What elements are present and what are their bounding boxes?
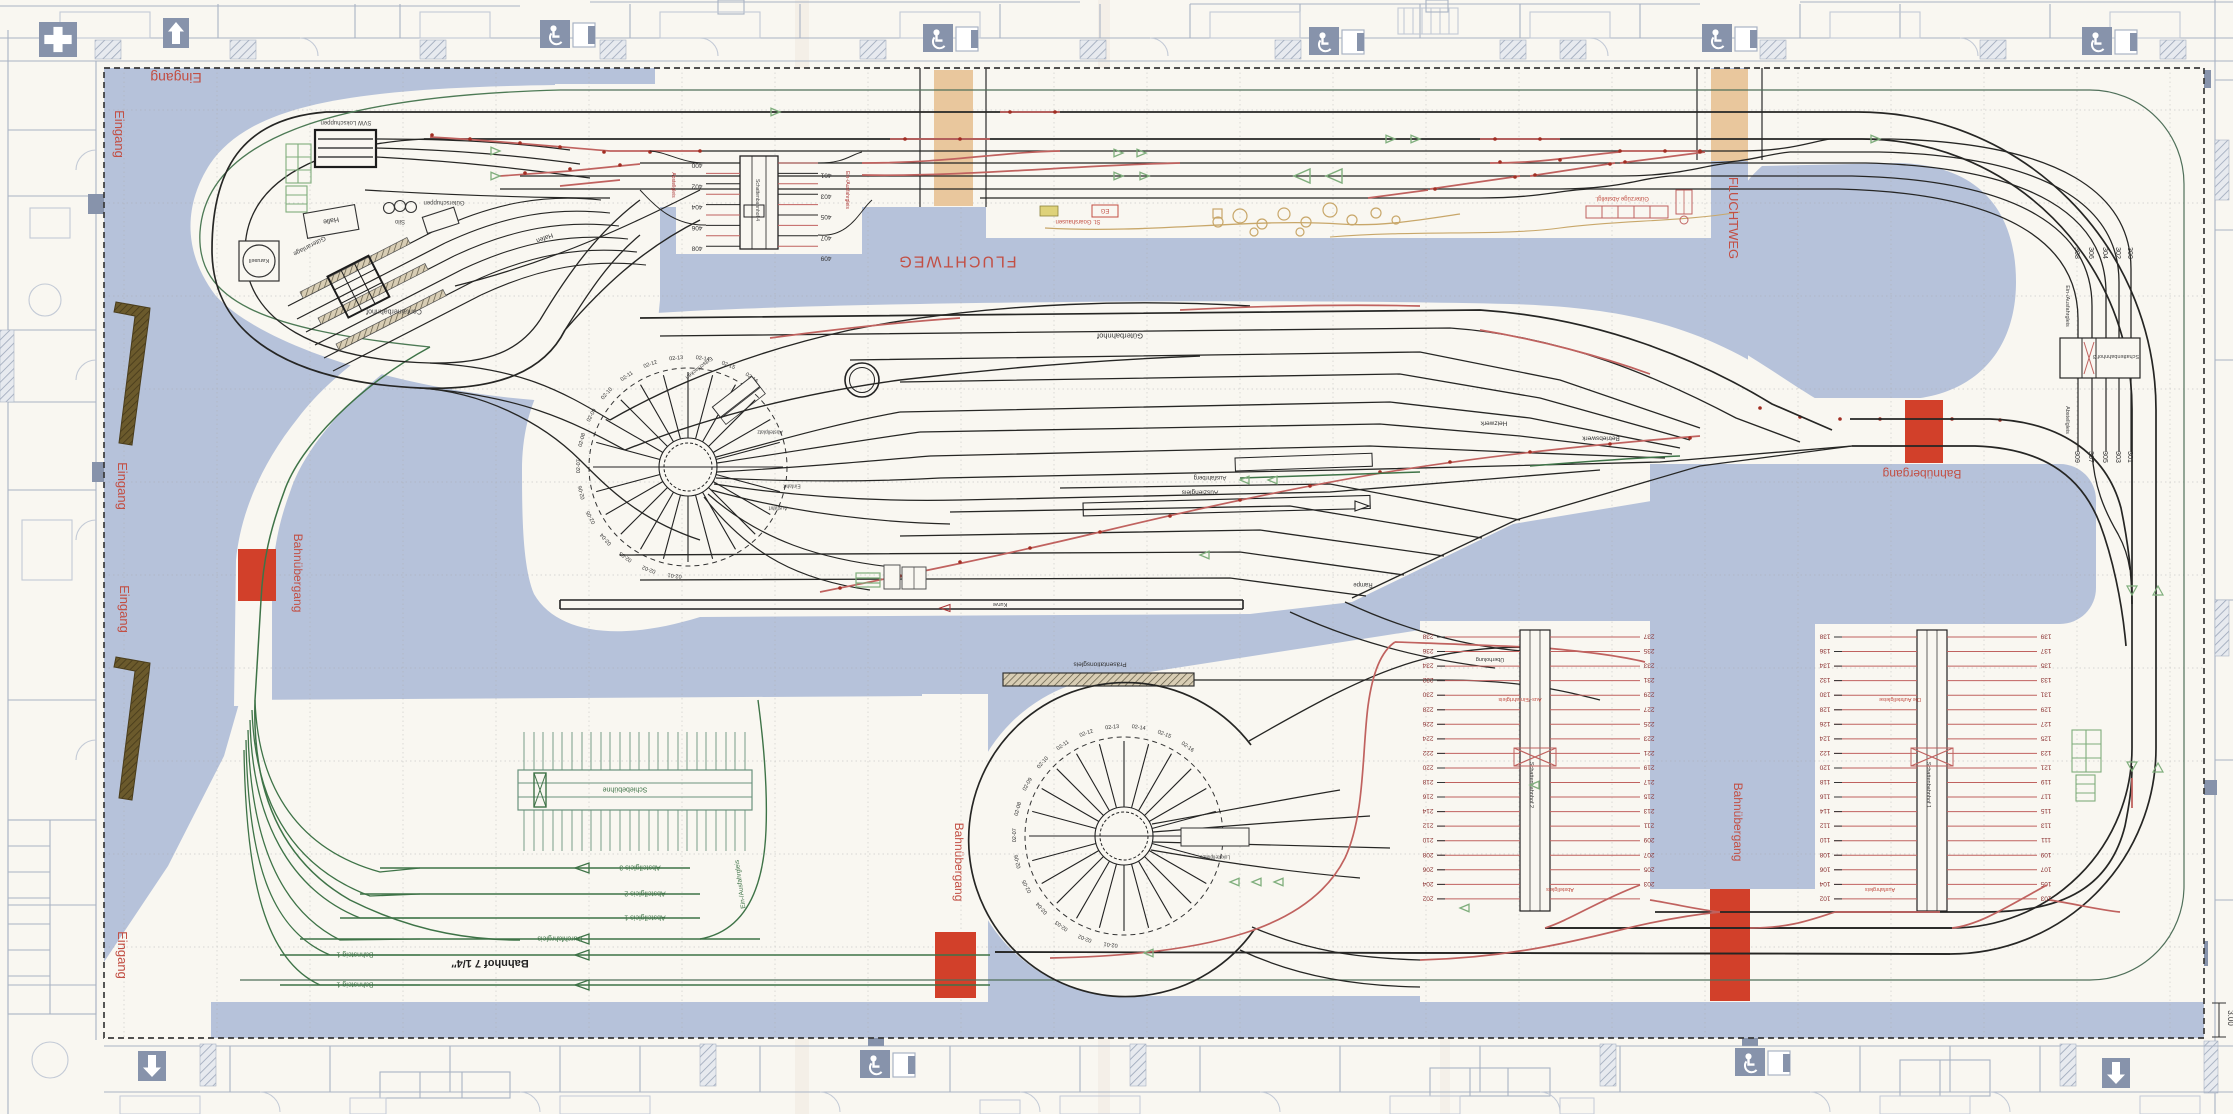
svg-text:222: 222 bbox=[1422, 749, 1433, 756]
svg-text:129: 129 bbox=[2040, 705, 2051, 712]
svg-text:Eingang: Eingang bbox=[115, 462, 130, 510]
svg-text:217: 217 bbox=[1643, 778, 1654, 785]
svg-text:125: 125 bbox=[2040, 734, 2051, 741]
svg-text:Containerbahnhof: Containerbahnhof bbox=[366, 308, 422, 315]
svg-text:Abstellgleis 3: Abstellgleis 3 bbox=[619, 864, 660, 871]
svg-text:Abstellgleis 1: Abstellgleis 1 bbox=[624, 914, 665, 921]
svg-text:FLUCHTWEG: FLUCHTWEG bbox=[1726, 177, 1741, 259]
svg-text:218: 218 bbox=[1422, 778, 1433, 785]
svg-text:124: 124 bbox=[1819, 734, 1830, 741]
svg-text:209: 209 bbox=[1643, 836, 1654, 843]
svg-text:402: 402 bbox=[691, 182, 702, 189]
svg-text:214: 214 bbox=[1422, 807, 1433, 814]
svg-text:204: 204 bbox=[1422, 880, 1433, 887]
svg-text:106: 106 bbox=[1819, 865, 1830, 872]
svg-text:104: 104 bbox=[1819, 880, 1830, 887]
svg-text:117: 117 bbox=[2040, 793, 2051, 800]
svg-text:Heizwerk: Heizwerk bbox=[1480, 420, 1507, 427]
svg-text:108: 108 bbox=[1819, 851, 1830, 858]
svg-text:136: 136 bbox=[1819, 647, 1830, 654]
svg-text:Bahnübergang: Bahnübergang bbox=[1731, 783, 1745, 862]
svg-text:Durchfahrgleis: Durchfahrgleis bbox=[537, 935, 583, 942]
svg-text:122: 122 bbox=[1819, 749, 1830, 756]
svg-text:126: 126 bbox=[1819, 720, 1830, 727]
svg-text:308: 308 bbox=[2073, 247, 2080, 259]
svg-text:401: 401 bbox=[820, 172, 831, 179]
svg-text:102: 102 bbox=[1819, 894, 1830, 901]
svg-text:115: 115 bbox=[2040, 807, 2051, 814]
svg-text:114: 114 bbox=[1819, 807, 1830, 814]
svg-text:305: 305 bbox=[2101, 451, 2108, 463]
svg-text:Güterbahnhof: Güterbahnhof bbox=[1096, 331, 1143, 340]
svg-text:127: 127 bbox=[2040, 720, 2051, 727]
svg-text:Rampe: Rampe bbox=[1353, 581, 1373, 587]
svg-text:107: 107 bbox=[2040, 865, 2051, 872]
svg-text:409: 409 bbox=[820, 255, 831, 262]
svg-text:118: 118 bbox=[1819, 778, 1830, 785]
svg-text:237: 237 bbox=[1643, 633, 1654, 640]
svg-text:227: 227 bbox=[1643, 705, 1654, 712]
svg-text:Karusell: Karusell bbox=[249, 257, 269, 263]
svg-text:211: 211 bbox=[1643, 822, 1654, 829]
svg-text:133: 133 bbox=[2040, 676, 2051, 683]
svg-text:FLUCHTWEG: FLUCHTWEG bbox=[897, 252, 1016, 269]
svg-text:Güterschuppen: Güterschuppen bbox=[423, 199, 464, 205]
svg-text:Eingang: Eingang bbox=[150, 70, 201, 86]
svg-text:238: 238 bbox=[1422, 633, 1433, 640]
svg-text:121: 121 bbox=[2040, 763, 2051, 770]
svg-text:111: 111 bbox=[2041, 836, 2051, 843]
svg-text:Bahnübergang: Bahnübergang bbox=[952, 823, 966, 902]
svg-text:304: 304 bbox=[2101, 247, 2108, 259]
svg-text:Ausfahrt: Ausfahrt bbox=[768, 504, 787, 510]
svg-text:St. Goarshausen: St. Goarshausen bbox=[1055, 218, 1100, 224]
svg-text:408: 408 bbox=[691, 245, 702, 252]
svg-text:210: 210 bbox=[1422, 836, 1433, 843]
svg-text:Schiebebühne: Schiebebühne bbox=[603, 786, 648, 793]
svg-text:Güterzüge Abstellgl.: Güterzüge Abstellgl. bbox=[1595, 195, 1649, 201]
svg-text:212: 212 bbox=[1422, 822, 1433, 829]
svg-text:Ein-/Ausfahrgleis: Ein-/Ausfahrgleis bbox=[2064, 285, 2070, 327]
svg-text:Überholung: Überholung bbox=[1476, 656, 1504, 663]
svg-text:215: 215 bbox=[1643, 793, 1654, 800]
svg-text:Bahnsteig 1: Bahnsteig 1 bbox=[336, 951, 373, 958]
svg-text:Aus-/Einfahrtgleis: Aus-/Einfahrtgleis bbox=[1498, 696, 1541, 702]
svg-text:403: 403 bbox=[820, 192, 831, 199]
svg-text:233: 233 bbox=[1643, 662, 1654, 669]
svg-text:123: 123 bbox=[2040, 749, 2051, 756]
svg-text:Einfahrt: Einfahrt bbox=[783, 482, 801, 488]
svg-text:110: 110 bbox=[1819, 836, 1830, 843]
svg-text:229: 229 bbox=[1643, 691, 1654, 698]
svg-text:EG: EG bbox=[1100, 207, 1109, 213]
svg-text:205: 205 bbox=[1643, 865, 1654, 872]
svg-text:130: 130 bbox=[1819, 691, 1830, 698]
svg-text:112: 112 bbox=[1819, 822, 1830, 829]
svg-text:134: 134 bbox=[1819, 662, 1830, 669]
svg-text:Ausziehgleis: Ausziehgleis bbox=[1181, 489, 1218, 496]
svg-text:Betriebswerk: Betriebswerk bbox=[1581, 435, 1619, 442]
svg-text:128: 128 bbox=[1819, 705, 1830, 712]
svg-text:Eingang: Eingang bbox=[112, 110, 127, 158]
svg-text:231: 231 bbox=[1643, 676, 1654, 683]
svg-text:Eingang: Eingang bbox=[117, 585, 132, 633]
svg-text:Ausfahrberg: Ausfahrberg bbox=[1194, 474, 1227, 480]
svg-text:232: 232 bbox=[1422, 676, 1433, 683]
svg-text:103: 103 bbox=[2040, 894, 2051, 901]
svg-text:Ein-/Ausfahrgleis: Ein-/Ausfahrgleis bbox=[844, 171, 850, 209]
svg-text:Abstellgleis: Abstellgleis bbox=[2064, 406, 2070, 434]
svg-text:220: 220 bbox=[1422, 763, 1433, 770]
svg-text:228: 228 bbox=[1422, 705, 1433, 712]
svg-text:216: 216 bbox=[1422, 793, 1433, 800]
svg-text:Präsentationsgleis: Präsentationsgleis bbox=[1073, 661, 1127, 668]
svg-text:Bahnhof 7 1/4″: Bahnhof 7 1/4″ bbox=[451, 957, 529, 969]
svg-text:Bahnübergang: Bahnübergang bbox=[291, 534, 305, 613]
svg-text:226: 226 bbox=[1422, 720, 1433, 727]
svg-text:02-07: 02-07 bbox=[1012, 828, 1018, 842]
svg-text:Abstellgleis 2: Abstellgleis 2 bbox=[624, 890, 665, 897]
svg-text:306: 306 bbox=[2087, 247, 2094, 259]
svg-text:Eingang: Eingang bbox=[115, 931, 130, 979]
svg-text:Abstellgleis: Abstellgleis bbox=[670, 172, 676, 198]
svg-text:301: 301 bbox=[2126, 451, 2133, 463]
svg-text:208: 208 bbox=[1422, 851, 1433, 858]
svg-text:236: 236 bbox=[1422, 647, 1433, 654]
svg-text:Silo: Silo bbox=[394, 218, 405, 224]
svg-text:119: 119 bbox=[2040, 778, 2051, 785]
svg-text:213: 213 bbox=[1643, 807, 1654, 814]
svg-text:404: 404 bbox=[691, 203, 702, 210]
svg-text:230: 230 bbox=[1422, 691, 1433, 698]
svg-text:109: 109 bbox=[2040, 851, 2051, 858]
svg-text:302: 302 bbox=[2114, 247, 2121, 259]
svg-text:Ausfahrgleis: Ausfahrgleis bbox=[1865, 886, 1896, 892]
svg-text:3.00: 3.00 bbox=[2226, 1010, 2233, 1026]
svg-text:207: 207 bbox=[1643, 851, 1654, 858]
svg-text:221: 221 bbox=[1643, 749, 1654, 756]
svg-text:206: 206 bbox=[1422, 865, 1433, 872]
svg-text:225: 225 bbox=[1643, 720, 1654, 727]
svg-text:Lokstellplätze: Lokstellplätze bbox=[1200, 853, 1231, 859]
svg-text:Schattenbahnhof 3: Schattenbahnhof 3 bbox=[2093, 353, 2139, 359]
svg-text:234: 234 bbox=[1422, 662, 1433, 669]
svg-text:235: 235 bbox=[1643, 647, 1654, 654]
svg-text:120: 120 bbox=[1819, 763, 1830, 770]
svg-text:Kurve: Kurve bbox=[993, 601, 1007, 607]
svg-text:202: 202 bbox=[1422, 894, 1433, 901]
svg-text:132: 132 bbox=[1819, 676, 1830, 683]
svg-text:Abstellplatz: Abstellplatz bbox=[757, 428, 783, 434]
svg-text:Bahnübergang: Bahnübergang bbox=[1883, 467, 1962, 481]
svg-text:300: 300 bbox=[2126, 247, 2133, 259]
svg-text:Die Aufstellgleise: Die Aufstellgleise bbox=[1879, 696, 1921, 702]
svg-text:Schattenbahnhof 4: Schattenbahnhof 4 bbox=[754, 179, 760, 221]
svg-text:131: 131 bbox=[2040, 691, 2051, 698]
svg-text:116: 116 bbox=[1819, 793, 1830, 800]
svg-text:Schattenbahnhof 1: Schattenbahnhof 1 bbox=[1925, 762, 1931, 808]
svg-text:224: 224 bbox=[1422, 734, 1433, 741]
svg-text:135: 135 bbox=[2040, 662, 2051, 669]
svg-text:405: 405 bbox=[820, 213, 831, 220]
svg-text:137: 137 bbox=[2040, 647, 2051, 654]
svg-text:223: 223 bbox=[1643, 734, 1654, 741]
svg-text:139: 139 bbox=[2040, 633, 2051, 640]
svg-text:113: 113 bbox=[2040, 822, 2051, 829]
svg-text:203: 203 bbox=[1643, 880, 1654, 887]
svg-text:Bahnsteig 1: Bahnsteig 1 bbox=[336, 981, 373, 988]
svg-text:303: 303 bbox=[2114, 451, 2121, 463]
svg-text:Abstellgleis: Abstellgleis bbox=[1546, 886, 1574, 892]
svg-text:309: 309 bbox=[2073, 451, 2080, 463]
svg-text:SVW Lokschuppen: SVW Lokschuppen bbox=[320, 119, 371, 125]
svg-text:138: 138 bbox=[1819, 633, 1830, 640]
svg-text:219: 219 bbox=[1643, 763, 1654, 770]
